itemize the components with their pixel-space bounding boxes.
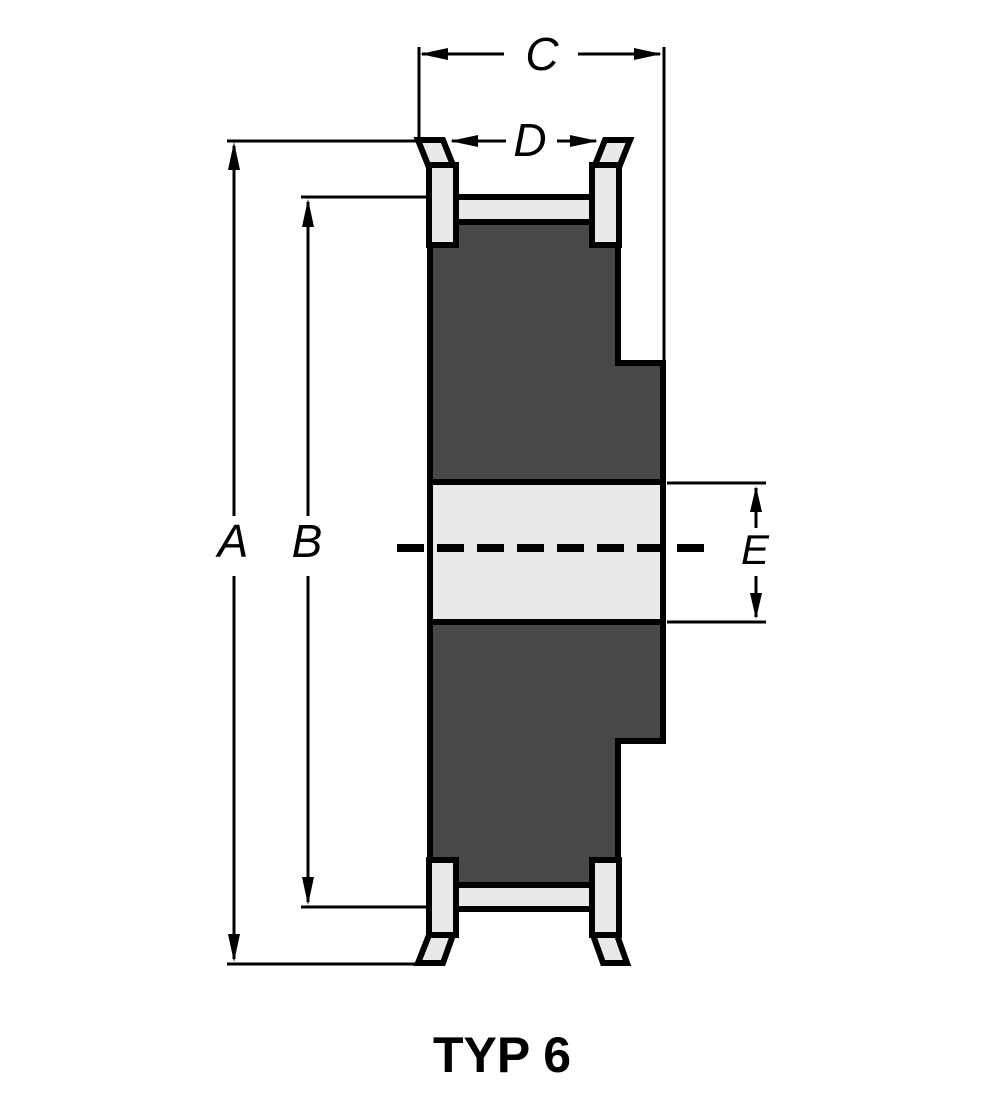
dimension-d: D — [450, 114, 598, 166]
dimension-e: E — [667, 483, 770, 622]
bottom-belt-surface — [452, 885, 596, 909]
flange-tip-bottom-right — [593, 935, 627, 963]
drawing-page: A B C D — [0, 0, 1000, 1104]
dim-e-label: E — [741, 526, 770, 573]
dim-d-arrow-left-icon — [450, 135, 478, 147]
dim-d-label: D — [513, 114, 546, 166]
flange-post-bottom-right — [592, 860, 619, 935]
top-belt-surface — [452, 197, 596, 222]
dim-a-label: A — [215, 515, 249, 567]
dim-e-arrow-down-icon — [750, 593, 762, 619]
flange-tip-bottom-left — [418, 935, 453, 963]
dim-b-label: B — [292, 515, 323, 567]
hub-bore-band — [430, 482, 663, 622]
dim-c-label: C — [525, 28, 559, 80]
pulley-dimension-drawing: A B C D — [0, 0, 1000, 1104]
dim-d-arrow-right-icon — [570, 135, 598, 147]
flange-tip-top-right — [595, 140, 630, 165]
flange-post-top-left — [429, 165, 456, 245]
flange-tip-top-left — [418, 140, 453, 165]
flange-post-bottom-left — [429, 860, 456, 935]
caption-typ-6: TYP 6 — [433, 1027, 571, 1083]
dim-a-arrow-down-icon — [228, 934, 240, 962]
dim-b-arrow-down-icon — [302, 877, 314, 905]
flange-post-top-right — [592, 165, 619, 245]
dim-a-arrow-up-icon — [228, 142, 240, 170]
pulley-geometry — [397, 140, 708, 963]
dim-c-arrow-left-icon — [420, 48, 448, 60]
dim-e-arrow-up-icon — [750, 486, 762, 512]
dim-b-arrow-up-icon — [302, 199, 314, 227]
dim-c-arrow-right-icon — [634, 48, 662, 60]
